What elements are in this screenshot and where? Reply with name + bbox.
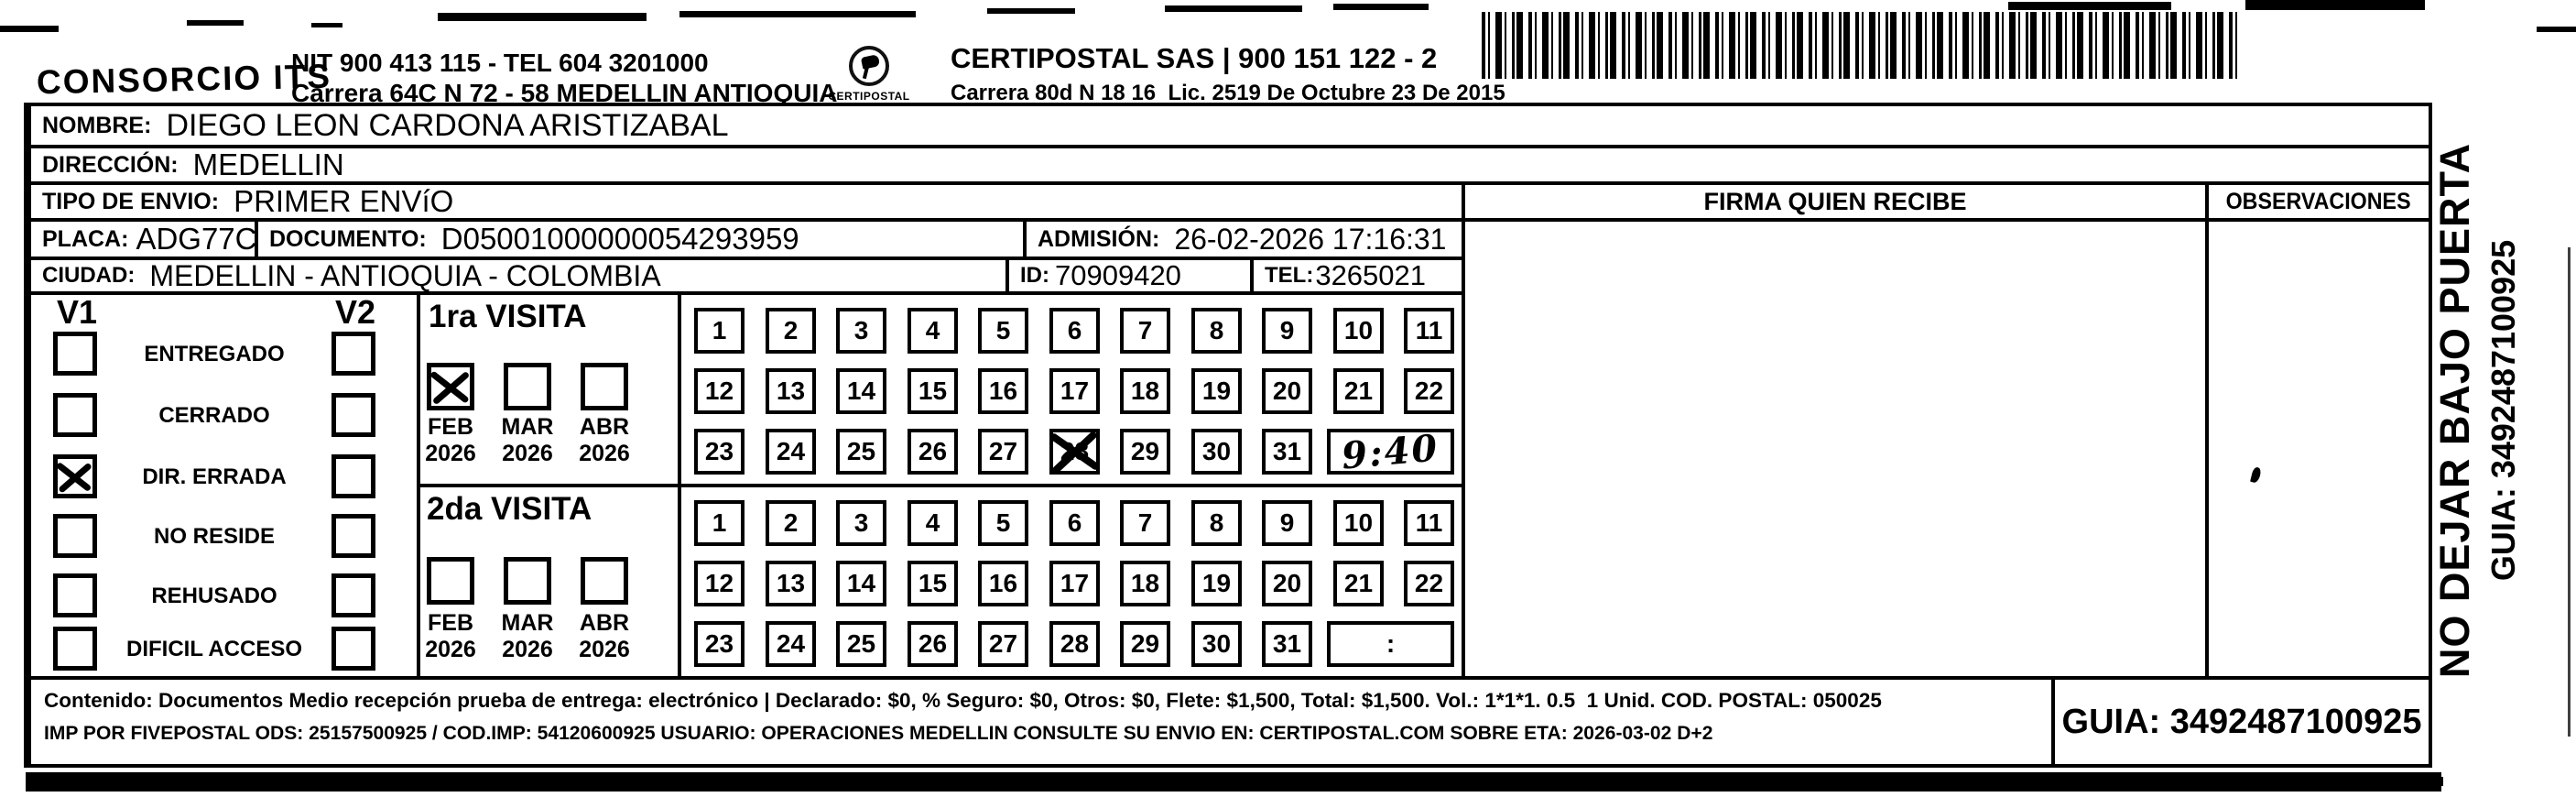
side-note: NO DEJAR BAJO PUERTA GUIA: 3492487100925 [2422, 101, 2532, 720]
visit2-day-23: 23 [694, 621, 745, 667]
visit2-title: 2da VISITA [427, 491, 592, 528]
visit1-day-2: 2 [766, 308, 816, 354]
visit1-day-31: 31 [1262, 429, 1312, 475]
visit1-day-4: 4 [908, 308, 958, 354]
documento-cell: DOCUMENTO: D05001000000054293959 [255, 218, 1027, 260]
status-checkbox-v1-dir-errada [53, 454, 97, 498]
visit2-day-17: 17 [1049, 561, 1100, 606]
status-label-cerrado: CERRADO [99, 403, 330, 429]
id-value: 70909420 [1055, 259, 1181, 292]
visit2-day-14: 14 [836, 561, 886, 606]
visit1-day-1: 1 [694, 308, 745, 354]
firma-header: FIRMA QUIEN RECIBE [1703, 188, 1966, 216]
status-checkbox-v2-dir-errada [332, 454, 375, 498]
ciudad-cell: CIUDAD: MEDELLIN - ANTIOQUIA - COLOMBIA [27, 257, 1009, 295]
visit1-month-abr-checkbox [581, 363, 628, 410]
visit1-day-8: 8 [1191, 308, 1242, 354]
status-checkbox-v2-entregado [332, 332, 375, 376]
side-note-guia: GUIA: 3492487100925 [2482, 240, 2526, 581]
documento-value: D05001000000054293959 [441, 222, 799, 257]
scan-artifact [311, 23, 342, 27]
footer-line1: Contenido: Documentos Medio recepción pr… [44, 689, 2038, 713]
scan-artifact [2537, 27, 2576, 32]
visit1-day-3: 3 [836, 308, 886, 354]
scan-artifact [2429, 777, 2443, 786]
visit2-month-abr-year: 2026 [566, 637, 643, 663]
documento-label: DOCUMENTO: [269, 226, 427, 253]
visit2-day-1: 1 [694, 500, 745, 546]
direccion-row: DIRECCIÓN: MEDELLIN [27, 145, 2432, 185]
observaciones-header-cell: OBSERVACIONES [2205, 181, 2432, 222]
guia-cell: GUIA: 3492487100925 [2051, 676, 2432, 768]
status-label-dificil-acceso: DIFICIL ACCESO [99, 637, 330, 662]
tipo-envio-value: PRIMER ENVíO [234, 184, 453, 219]
status-rows: ENTREGADOCERRADODIR. ERRADANO RESIDEREHU… [27, 291, 420, 680]
status-label-rehusado: REHUSADO [99, 584, 330, 609]
ink-mark [2250, 466, 2262, 484]
visit1-month-abr-year: 2026 [566, 441, 643, 467]
visit1-day-26: 26 [908, 429, 958, 475]
visit1-day-13: 13 [766, 368, 816, 414]
visit2-day-20: 20 [1262, 561, 1312, 606]
visit1-day-25: 25 [836, 429, 886, 475]
status-checkbox-v2-cerrado [332, 393, 375, 437]
visit2-day-9: 9 [1262, 500, 1312, 546]
visit2-day-10: 10 [1333, 500, 1384, 546]
visit2-month-abr-checkbox [581, 557, 628, 605]
status-checkbox-v2-rehusado [332, 573, 375, 617]
direccion-value: MEDELLIN [193, 147, 344, 182]
scan-artifact [1165, 5, 1302, 12]
visit2-day-15: 15 [908, 561, 958, 606]
direccion-label: DIRECCIÓN: [42, 152, 179, 179]
visit1-day-23: 23 [694, 429, 745, 475]
admision-value: 26-02-2026 17:16:31 [1174, 223, 1446, 257]
visit1-month-mar-label: MAR [489, 414, 566, 441]
visit1-day-5: 5 [978, 308, 1028, 354]
visit2-day-16: 16 [978, 561, 1028, 606]
ciudad-label: CIUDAD: [42, 263, 135, 289]
admision-cell: ADMISIÓN: 26-02-2026 17:16:31 [1023, 218, 1465, 260]
visit2-day-2: 2 [766, 500, 816, 546]
visit2-day-11: 11 [1404, 500, 1454, 546]
visit2-month-feb-checkbox [427, 557, 474, 605]
observaciones-area [2205, 218, 2432, 680]
tel-cell: TEL: 3265021 [1250, 257, 1465, 295]
visit2-month-mar-checkbox [504, 557, 551, 605]
tel-value: 3265021 [1315, 259, 1426, 292]
visit2-day-13: 13 [766, 561, 816, 606]
visit2-day-27: 27 [978, 621, 1028, 667]
visit2-month-feb-label: FEB [412, 610, 489, 637]
operator-block: CERTIPOSTAL SAS | 900 151 122 - 2 Carrer… [951, 42, 1505, 106]
visit2-month-abr-label: ABR [566, 610, 643, 637]
visit1-month-feb-label: FEB [412, 414, 489, 441]
visit1-day-27: 27 [978, 429, 1028, 475]
visit2-day-6: 6 [1049, 500, 1100, 546]
nombre-value: DIEGO LEON CARDONA ARISTIZABAL [166, 108, 728, 144]
visit1-title: 1ra VISITA [429, 299, 586, 335]
visit2-day-18: 18 [1120, 561, 1170, 606]
nombre-row: NOMBRE: DIEGO LEON CARDONA ARISTIZABAL [27, 103, 2432, 148]
nombre-label: NOMBRE: [42, 113, 151, 139]
visit1-day-21: 21 [1333, 368, 1384, 414]
tipo-envio-label: TIPO DE ENVIO: [42, 189, 219, 215]
guia-number: GUIA: 3492487100925 [2062, 703, 2422, 742]
visit2-day-28: 28 [1049, 621, 1100, 667]
visit2-day-25: 25 [836, 621, 886, 667]
scan-artifact [2245, 0, 2425, 10]
visit2-day-31: 31 [1262, 621, 1312, 667]
status-checkbox-v2-no-reside [332, 514, 375, 558]
visit1-day-12: 12 [694, 368, 745, 414]
visit1-day-14: 14 [836, 368, 886, 414]
status-checkbox-v1-dificil-acceso [53, 627, 97, 671]
tel-label: TEL: [1265, 263, 1313, 289]
visit1-day-grid: 1234567891011121314151617181920212223242… [678, 291, 1465, 487]
visit1-day-18: 18 [1120, 368, 1170, 414]
status-checkbox-v1-no-reside [53, 514, 97, 558]
scan-artifact [1333, 4, 1429, 10]
barcode [1482, 12, 2240, 79]
visit1-day-22: 22 [1404, 368, 1454, 414]
operator-name: CERTIPOSTAL SAS | 900 151 122 - 2 [951, 42, 1505, 75]
visit2-day-29: 29 [1120, 621, 1170, 667]
footer-text-cell: Contenido: Documentos Medio recepción pr… [27, 676, 2055, 768]
company-name: CONSORCIO ITS [37, 58, 332, 103]
visit2-month-mar-year: 2026 [489, 637, 566, 663]
placa-cell: PLACA: ADG77C [27, 218, 258, 260]
logo-glyph-icon [861, 54, 880, 70]
company-nit-line: NIT 900 413 115 - TEL 604 3201000 [291, 48, 837, 78]
visit1-day-15: 15 [908, 368, 958, 414]
firma-area [1462, 218, 2209, 680]
status-checkbox-v1-rehusado [53, 573, 97, 617]
company-contact: NIT 900 413 115 - TEL 604 3201000 Carrer… [291, 48, 837, 108]
status-label-entregado: ENTREGADO [99, 342, 330, 367]
visit1-day-17: 17 [1049, 368, 1100, 414]
visit1-day-28: 28 [1049, 429, 1100, 475]
scan-bottom-bar [26, 772, 2441, 792]
visit2-month-mar-label: MAR [489, 610, 566, 637]
visit1-month-mar-checkbox [504, 363, 551, 410]
visit2-day-8: 8 [1191, 500, 1242, 546]
visit2-day-3: 3 [836, 500, 886, 546]
id-label: ID: [1020, 263, 1049, 289]
scan-artifact [679, 11, 916, 17]
status-label-dir-errada: DIR. ERRADA [99, 464, 330, 490]
scan-artifact [438, 13, 647, 21]
visit1-time-box: 9:40 [1327, 429, 1454, 475]
visit2-day-19: 19 [1191, 561, 1242, 606]
visit2-time-value: : [1386, 629, 1395, 659]
visit1-day-30: 30 [1191, 429, 1242, 475]
visit1-month-feb-checkbox [427, 363, 474, 410]
visit1-day-7: 7 [1120, 308, 1170, 354]
visit2-day-24: 24 [766, 621, 816, 667]
visit1-day-16: 16 [978, 368, 1028, 414]
scanned-delivery-form: CONSORCIO ITS NIT 900 413 115 - TEL 604 … [0, 0, 2576, 797]
visit1-day-20: 20 [1262, 368, 1312, 414]
ciudad-value: MEDELLIN - ANTIOQUIA - COLOMBIA [149, 259, 660, 293]
visit1-day-6: 6 [1049, 308, 1100, 354]
visit2-day-21: 21 [1333, 561, 1384, 606]
placa-value: ADG77C [136, 222, 256, 257]
visit1-day-9: 9 [1262, 308, 1312, 354]
visit2-day-12: 12 [694, 561, 745, 606]
visit2-day-26: 26 [908, 621, 958, 667]
status-label-no-reside: NO RESIDE [99, 524, 330, 550]
visit2-month-feb-year: 2026 [412, 637, 489, 663]
footer-line2: IMP POR FIVEPOSTAL ODS: 25157500925 / CO… [44, 722, 1998, 745]
visit1-month-mar-year: 2026 [489, 441, 566, 467]
side-note-warning: NO DEJAR BAJO PUERTA [2429, 143, 2482, 678]
id-cell: ID: 70909420 [1005, 257, 1254, 295]
visit1-day-24: 24 [766, 429, 816, 475]
scan-artifact [0, 26, 59, 32]
logo-caption: CERTIPOSTAL [823, 90, 915, 103]
firma-header-cell: FIRMA QUIEN RECIBE [1462, 181, 2209, 222]
scan-artifact [187, 20, 244, 26]
visit1-month-feb-year: 2026 [412, 441, 489, 467]
certipostal-logo-icon [849, 46, 889, 86]
visit2-day-22: 22 [1404, 561, 1454, 606]
status-checkbox-v1-cerrado [53, 393, 97, 437]
placa-label: PLACA: [42, 226, 128, 253]
scan-right-edge [2568, 247, 2571, 737]
visit1-day-19: 19 [1191, 368, 1242, 414]
visit1-day-29: 29 [1120, 429, 1170, 475]
visit1-time-value: 9:40 [1341, 426, 1441, 477]
visit1-day-11: 11 [1404, 308, 1454, 354]
visit2-day-5: 5 [978, 500, 1028, 546]
scan-artifact [2008, 2, 2171, 10]
scan-artifact [987, 8, 1075, 14]
status-checkbox-v2-dificil-acceso [332, 627, 375, 671]
observaciones-header: OBSERVACIONES [2226, 189, 2411, 215]
visit2-time-box: : [1327, 621, 1454, 667]
visit2-day-7: 7 [1120, 500, 1170, 546]
visit2-day-4: 4 [908, 500, 958, 546]
visit2-day-30: 30 [1191, 621, 1242, 667]
visit1-day-10: 10 [1333, 308, 1384, 354]
visit2-day-grid: 1234567891011121314151617181920212223242… [678, 484, 1465, 680]
visit1-month-abr-label: ABR [566, 414, 643, 441]
tipo-envio-cell: TIPO DE ENVIO: PRIMER ENVíO [27, 181, 1465, 222]
admision-label: ADMISIÓN: [1038, 226, 1159, 253]
status-checkbox-v1-entregado [53, 332, 97, 376]
